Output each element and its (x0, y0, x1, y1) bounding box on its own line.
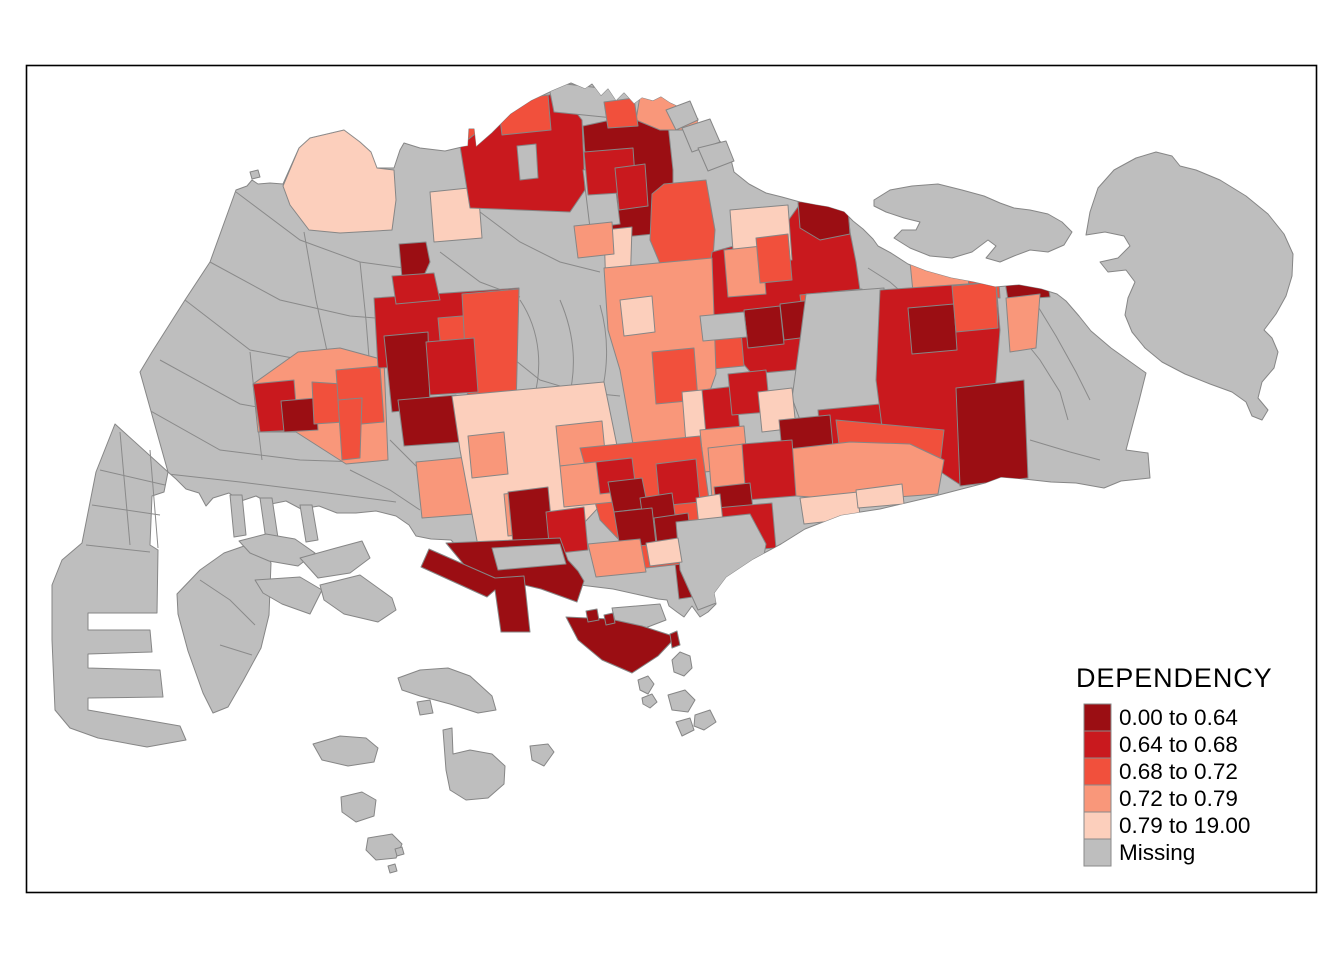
svg-text:0.64 to 0.68: 0.64 to 0.68 (1119, 732, 1238, 757)
svg-text:0.00 to 0.64: 0.00 to 0.64 (1119, 705, 1238, 730)
svg-text:0.72 to 0.79: 0.72 to 0.79 (1119, 786, 1238, 811)
svg-text:DEPENDENCY: DEPENDENCY (1076, 663, 1273, 693)
svg-text:Missing: Missing (1119, 840, 1195, 865)
svg-text:0.68 to 0.72: 0.68 to 0.72 (1119, 759, 1238, 784)
svg-text:0.79 to 19.00: 0.79 to 19.00 (1119, 813, 1250, 838)
